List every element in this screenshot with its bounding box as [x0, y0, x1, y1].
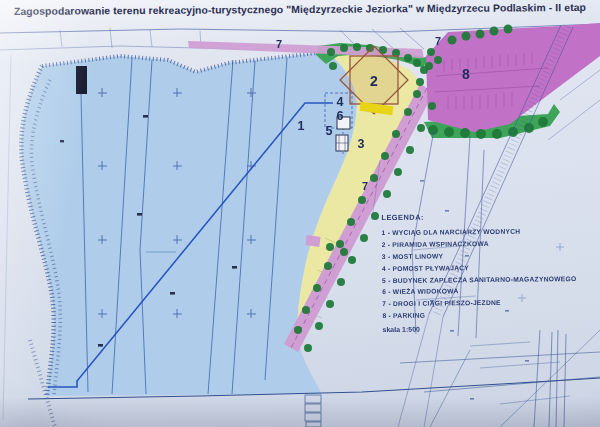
marker-7-top: 7 — [276, 38, 282, 50]
marker-4: 4 — [337, 95, 344, 109]
site-plan-photo: Zagospodarowanie terenu rekreacyjno-tury… — [0, 0, 600, 427]
marker-7-path: 7 — [362, 180, 368, 192]
marker-5: 5 — [326, 124, 333, 138]
legend-item: 4 - POMOST PŁYWAJĄCY — [382, 263, 587, 272]
marker-1: 1 — [298, 119, 305, 133]
legend-item: 2 - PIRAMIDA WSPINACZKOWA — [382, 239, 587, 248]
ski-lift-station — [76, 66, 87, 94]
legend-item: 6 - WIEŻA WIDOKOWA — [382, 286, 587, 295]
legend-scale: skala 1:500 — [383, 324, 588, 333]
marker-2: 2 — [370, 73, 378, 89]
legend-item: 1 - WYCIĄG DLA NARCIARZY WODNYCH — [382, 227, 587, 236]
legend-heading: LEGENDA: — [381, 211, 586, 222]
legend-item: 3 - MOST LINOWY — [382, 251, 587, 260]
legend: LEGENDA: 1 - WYCIĄG DLA NARCIARZY WODNYC… — [381, 211, 587, 340]
legend-item: 8 - PARKING — [382, 310, 587, 319]
marker-8: 8 — [462, 66, 470, 82]
legend-item: 7 - DROGI I CIĄGI PIESZO-JEZDNE — [382, 298, 587, 307]
marker-7-right: 7 — [435, 35, 441, 47]
legend-item: 5 - BUDYNEK ZAPLECZA SANITARNO-MAGAZYNOW… — [382, 274, 587, 283]
marker-3: 3 — [358, 137, 365, 151]
marker-6: 6 — [337, 109, 344, 123]
beach-shelter — [305, 235, 320, 247]
